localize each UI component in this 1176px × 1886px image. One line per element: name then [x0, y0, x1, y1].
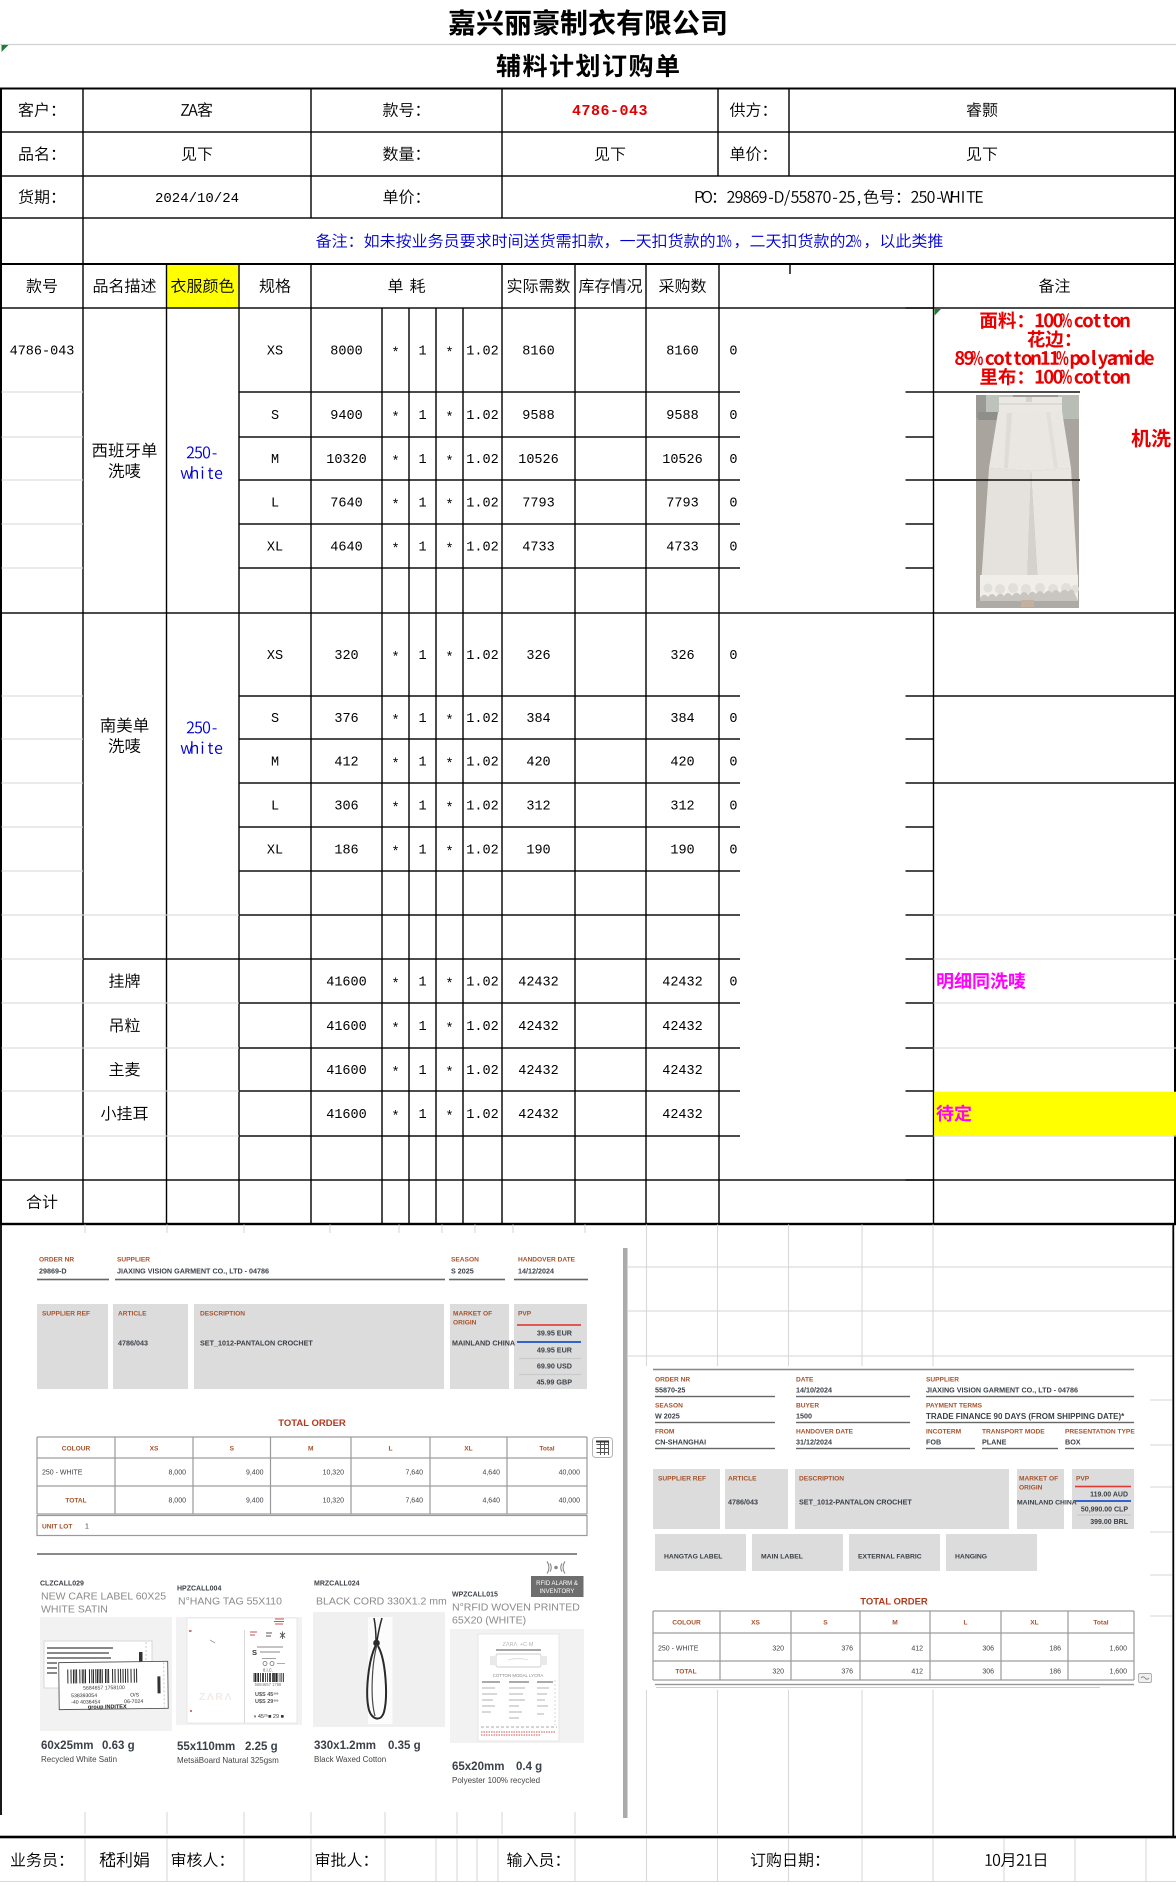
svg-text:186: 186 — [334, 844, 358, 859]
svg-text:BOX: BOX — [1065, 1438, 1081, 1447]
svg-text:*: * — [445, 1110, 453, 1125]
svg-text:8,000: 8,000 — [168, 1470, 186, 1477]
svg-text:1.02: 1.02 — [466, 712, 498, 727]
svg-text:186: 186 — [1049, 1669, 1061, 1676]
svg-text:N°RFID WOVEN PRINTED: N°RFID WOVEN PRINTED — [452, 1602, 580, 1614]
svg-text:HANDOVER DATE: HANDOVER DATE — [518, 1256, 576, 1263]
svg-text:S: S — [823, 1619, 828, 1626]
svg-text:ORDER NR: ORDER NR — [655, 1376, 690, 1383]
svg-text:55x110mm: 55x110mm — [177, 1741, 235, 1753]
svg-text:L: L — [271, 497, 279, 512]
svg-text:399.00 BRL: 399.00 BRL — [1090, 1519, 1128, 1526]
svg-text:ARTICLE: ARTICLE — [728, 1475, 757, 1482]
svg-text:186: 186 — [1049, 1646, 1061, 1653]
svg-text:XS: XS — [150, 1445, 159, 1452]
svg-text:55870-25: 55870-25 — [655, 1386, 685, 1395]
svg-text:*: * — [445, 978, 453, 993]
svg-text:N°HANG TAG 55X110: N°HANG TAG 55X110 — [178, 1596, 282, 1608]
svg-text:INVENTORY: INVENTORY — [540, 1589, 575, 1595]
svg-text:Polyester 100% recycled: Polyester 100% recycled — [452, 1776, 540, 1785]
svg-text:0: 0 — [729, 453, 737, 468]
svg-text:*: * — [445, 714, 453, 729]
svg-text:1: 1 — [85, 1524, 89, 1531]
svg-text:1: 1 — [418, 844, 426, 859]
svg-text:42432: 42432 — [518, 1108, 559, 1123]
svg-text:1.02: 1.02 — [466, 453, 498, 468]
svg-text:DESCRIPTION: DESCRIPTION — [799, 1475, 844, 1482]
svg-text:376: 376 — [334, 712, 358, 727]
svg-text:FROM: FROM — [655, 1428, 675, 1435]
svg-text:4786-043: 4786-043 — [572, 103, 648, 120]
svg-text:65x20mm: 65x20mm — [452, 1761, 504, 1773]
svg-text:BUYER: BUYER — [796, 1402, 819, 1409]
svg-text:*: * — [391, 499, 399, 514]
svg-text:42432: 42432 — [662, 1108, 703, 1123]
svg-text:M: M — [271, 453, 279, 468]
svg-text:69.90 USD: 69.90 USD — [537, 1362, 572, 1371]
svg-text:PVP: PVP — [1076, 1475, 1090, 1482]
svg-text:4733: 4733 — [522, 541, 554, 556]
svg-text:4786/043: 4786/043 — [728, 1498, 758, 1507]
svg-text:SET_1012-PANTALON CROCHET: SET_1012-PANTALON CROCHET — [799, 1498, 912, 1507]
svg-text:S: S — [252, 1648, 257, 1657]
svg-text:41600: 41600 — [326, 1020, 367, 1035]
svg-text:*: * — [391, 543, 399, 558]
svg-text:*: * — [445, 758, 453, 773]
svg-text:31/12/2024: 31/12/2024 — [796, 1438, 832, 1447]
svg-text:PVP: PVP — [518, 1310, 532, 1317]
svg-text:412: 412 — [911, 1646, 923, 1653]
svg-text:FOB: FOB — [926, 1438, 941, 1447]
svg-text:*: * — [391, 455, 399, 470]
svg-text:HANDOVER DATE: HANDOVER DATE — [796, 1428, 854, 1435]
svg-text:9588: 9588 — [666, 409, 698, 424]
svg-text:INCOTERM: INCOTERM — [926, 1428, 962, 1435]
svg-text:42432: 42432 — [662, 1064, 703, 1079]
svg-text:SET_1012-PANTALON CROCHET: SET_1012-PANTALON CROCHET — [200, 1339, 313, 1348]
svg-text:XS: XS — [267, 649, 283, 664]
svg-text:5684657 1758: 5684657 1758 — [255, 1682, 282, 1687]
svg-text:29869-D: 29869-D — [39, 1267, 67, 1276]
svg-text:0.35 g: 0.35 g — [388, 1740, 421, 1752]
svg-text:TOTAL ORDER: TOTAL ORDER — [278, 1418, 346, 1429]
svg-text:7640: 7640 — [330, 497, 362, 512]
svg-text:45.99 GBP: 45.99 GBP — [536, 1378, 572, 1387]
svg-text:*: * — [391, 714, 399, 729]
svg-text:4786/043: 4786/043 — [118, 1339, 148, 1348]
svg-text:420: 420 — [526, 756, 550, 771]
svg-text:320: 320 — [772, 1669, 784, 1676]
svg-text:*: * — [391, 651, 399, 666]
svg-text:U$S 45⁹⁹: U$S 45⁹⁹ — [255, 1692, 279, 1698]
svg-text:*: * — [391, 1110, 399, 1125]
svg-text:326: 326 — [670, 649, 694, 664]
svg-text:384: 384 — [526, 712, 550, 727]
svg-text:50,990.00 CLP: 50,990.00 CLP — [1081, 1507, 1128, 1514]
svg-text:1.02: 1.02 — [466, 409, 498, 424]
svg-text:60x25mm: 60x25mm — [41, 1740, 93, 1752]
svg-text:1: 1 — [418, 1108, 426, 1123]
svg-text:1: 1 — [418, 541, 426, 556]
svg-text:1: 1 — [418, 976, 426, 991]
svg-text:WHITE SATIN: WHITE SATIN — [41, 1604, 108, 1616]
svg-text:376: 376 — [841, 1646, 853, 1653]
svg-text:MARKET OF: MARKET OF — [1019, 1475, 1058, 1482]
svg-text:0: 0 — [729, 976, 737, 991]
svg-text:*: * — [445, 1022, 453, 1037]
svg-text:S: S — [230, 1445, 235, 1452]
svg-text:S 2025: S 2025 — [451, 1267, 474, 1276]
svg-text:*: * — [391, 347, 399, 362]
svg-text:M: M — [271, 756, 279, 771]
svg-text:8.I.C.: 8.I.C. — [263, 1668, 273, 1673]
svg-text:412: 412 — [911, 1669, 923, 1676]
svg-text:SUPPLIER REF: SUPPLIER REF — [658, 1475, 706, 1482]
svg-text:312: 312 — [670, 800, 694, 815]
svg-text:Total: Total — [1093, 1619, 1108, 1626]
svg-text:1.02: 1.02 — [466, 844, 498, 859]
svg-text:65X20 (WHITE): 65X20 (WHITE) — [452, 1615, 526, 1627]
svg-text:MAINLAND CHINA: MAINLAND CHINA — [452, 1339, 515, 1348]
svg-text:0: 0 — [729, 844, 737, 859]
svg-text:1: 1 — [418, 453, 426, 468]
svg-text:1: 1 — [418, 1064, 426, 1079]
svg-text:0: 0 — [729, 756, 737, 771]
svg-text:*: * — [391, 846, 399, 861]
svg-text:7793: 7793 — [522, 497, 554, 512]
svg-text:0: 0 — [729, 409, 737, 424]
svg-text:14/10/2024: 14/10/2024 — [796, 1386, 832, 1395]
svg-text:ZΛRΛ: ZΛRΛ — [199, 1691, 233, 1703]
svg-text:1.02: 1.02 — [466, 1108, 498, 1123]
svg-text:8160: 8160 — [522, 345, 554, 360]
svg-text:COTTON MODAL LYCRA: COTTON MODAL LYCRA — [493, 1673, 544, 1678]
svg-text:CLZCALL029: CLZCALL029 — [40, 1581, 84, 1588]
svg-text:1.02: 1.02 — [466, 649, 498, 664]
svg-text:0: 0 — [729, 541, 737, 556]
svg-text:06-7024: 06-7024 — [124, 1699, 143, 1705]
svg-text:Total: Total — [539, 1445, 554, 1452]
svg-text:ORIGIN: ORIGIN — [1019, 1484, 1043, 1491]
svg-text:2024/10/24: 2024/10/24 — [155, 191, 239, 207]
svg-text:TRADE FINANCE 90 DAYS (FROM SH: TRADE FINANCE 90 DAYS (FROM SHIPPING DAT… — [926, 1412, 1125, 1421]
svg-text:Black Waxed Cotton: Black Waxed Cotton — [314, 1755, 386, 1764]
svg-text:0: 0 — [729, 345, 737, 360]
svg-text:1.02: 1.02 — [466, 345, 498, 360]
svg-text:42432: 42432 — [518, 1064, 559, 1079]
svg-text:TOTAL: TOTAL — [65, 1497, 86, 1504]
svg-text:330x1.2mm: 330x1.2mm — [314, 1740, 376, 1752]
svg-text:1: 1 — [418, 409, 426, 424]
svg-text:39.95 EUR: 39.95 EUR — [537, 1329, 573, 1338]
svg-text:1.02: 1.02 — [466, 756, 498, 771]
svg-text:ZΛRΛ +C·M: ZΛRΛ +C·M — [502, 1642, 533, 1648]
svg-text:42432: 42432 — [662, 1020, 703, 1035]
svg-text:9400: 9400 — [330, 409, 362, 424]
svg-text:190: 190 — [526, 844, 550, 859]
svg-text:10320: 10320 — [326, 453, 367, 468]
svg-text:1.02: 1.02 — [466, 497, 498, 512]
svg-text:L: L — [271, 800, 279, 815]
svg-text:XL: XL — [464, 1445, 472, 1452]
svg-text:S: S — [271, 409, 279, 424]
svg-text:41600: 41600 — [326, 976, 367, 991]
svg-text:41600: 41600 — [326, 1064, 367, 1079]
svg-text:4640: 4640 — [330, 541, 362, 556]
svg-text:384: 384 — [670, 712, 694, 727]
svg-text:HPZCALL004: HPZCALL004 — [177, 1586, 221, 1593]
svg-text:S: S — [271, 712, 279, 727]
svg-text:0: 0 — [729, 649, 737, 664]
svg-text:10,320: 10,320 — [323, 1470, 345, 1477]
svg-text:*: * — [391, 411, 399, 426]
svg-text:119.00 AUD: 119.00 AUD — [1090, 1492, 1128, 1499]
svg-text:*: * — [391, 1066, 399, 1081]
svg-text:1: 1 — [418, 649, 426, 664]
svg-text:MAIN LABEL: MAIN LABEL — [761, 1553, 803, 1560]
svg-text:group INDITEX: group INDITEX — [88, 1704, 127, 1710]
svg-text:*: * — [445, 543, 453, 558]
svg-text:*: * — [391, 1022, 399, 1037]
svg-text:DESCRIPTION: DESCRIPTION — [200, 1310, 245, 1317]
svg-text:CN-SHANGHAI: CN-SHANGHAI — [655, 1438, 706, 1447]
svg-text:4,640: 4,640 — [482, 1498, 500, 1505]
svg-text:*: * — [391, 802, 399, 817]
svg-text:EXTERNAL FABRIC: EXTERNAL FABRIC — [858, 1553, 922, 1560]
svg-text:4733: 4733 — [666, 541, 698, 556]
svg-text:538393054: 538393054 — [71, 1693, 97, 1699]
svg-text:XS: XS — [267, 345, 283, 360]
svg-text:42432: 42432 — [662, 976, 703, 991]
svg-text:5684657 1758100: 5684657 1758100 — [83, 1685, 125, 1692]
svg-text:XL: XL — [267, 844, 283, 859]
svg-text:8000: 8000 — [330, 345, 362, 360]
svg-text:1,600: 1,600 — [1109, 1669, 1127, 1676]
svg-text:MetsäBoard Natural 325gsm: MetsäBoard Natural 325gsm — [177, 1756, 279, 1765]
svg-text:1: 1 — [418, 712, 426, 727]
svg-text:376: 376 — [841, 1669, 853, 1676]
svg-text:1: 1 — [418, 800, 426, 815]
svg-text:0.63 g: 0.63 g — [102, 1740, 135, 1752]
svg-text:7,640: 7,640 — [405, 1470, 423, 1477]
svg-text:XL: XL — [267, 541, 283, 556]
svg-text:2.25 g: 2.25 g — [245, 1741, 278, 1753]
svg-text:*: * — [391, 758, 399, 773]
svg-text:0: 0 — [729, 497, 737, 512]
svg-text:306: 306 — [982, 1669, 994, 1676]
svg-text:RFID ALARM &: RFID ALARM & — [536, 1581, 578, 1587]
svg-text:40,000: 40,000 — [559, 1470, 581, 1477]
svg-text:*: * — [445, 651, 453, 666]
svg-text:1: 1 — [418, 345, 426, 360]
svg-text:TOTAL: TOTAL — [675, 1668, 696, 1675]
svg-text:14/12/2024: 14/12/2024 — [518, 1267, 554, 1276]
svg-text:PLANE: PLANE — [982, 1438, 1007, 1447]
svg-text:0: 0 — [729, 800, 737, 815]
svg-text:SUPPLIER REF: SUPPLIER REF — [42, 1310, 90, 1317]
svg-text:L: L — [388, 1445, 392, 1452]
svg-text:420: 420 — [670, 756, 694, 771]
svg-text:1: 1 — [418, 497, 426, 512]
svg-text:9588: 9588 — [522, 409, 554, 424]
svg-text:PRESENTATION TYPE: PRESENTATION TYPE — [1065, 1428, 1135, 1435]
svg-text:ORIGIN: ORIGIN — [453, 1319, 477, 1326]
svg-text:1.02: 1.02 — [466, 541, 498, 556]
svg-text:*: * — [445, 347, 453, 362]
svg-text:*: * — [445, 1066, 453, 1081]
svg-text:BLACK CORD 330X1.2 mm: BLACK CORD 330X1.2 mm — [316, 1596, 447, 1608]
svg-text:326: 326 — [526, 649, 550, 664]
svg-text:*: * — [445, 802, 453, 817]
svg-text:O/S: O/S — [130, 1692, 140, 1698]
svg-text:10526: 10526 — [662, 453, 703, 468]
svg-text:306: 306 — [982, 1646, 994, 1653]
svg-text:412: 412 — [334, 756, 358, 771]
svg-text:W 2025: W 2025 — [655, 1412, 680, 1421]
svg-text:M: M — [892, 1619, 898, 1626]
svg-text:NEW CARE LABEL 60X25: NEW CARE LABEL 60X25 — [41, 1591, 166, 1603]
svg-text:U$S 29⁹⁹: U$S 29⁹⁹ — [255, 1699, 279, 1705]
svg-text:1.02: 1.02 — [466, 976, 498, 991]
svg-text:9,400: 9,400 — [246, 1470, 264, 1477]
svg-text:1.02: 1.02 — [466, 1064, 498, 1079]
svg-text:L: L — [963, 1619, 967, 1626]
svg-text:9,400: 9,400 — [246, 1498, 264, 1505]
svg-text:HANGTAG LABEL: HANGTAG LABEL — [664, 1553, 722, 1560]
svg-text:COLOUR: COLOUR — [62, 1445, 91, 1452]
svg-text:DATE: DATE — [796, 1376, 814, 1383]
svg-text:COLOUR: COLOUR — [672, 1619, 701, 1626]
svg-text:Recycled White Satin: Recycled White Satin — [41, 1755, 117, 1764]
svg-text:SEASON: SEASON — [451, 1256, 479, 1263]
svg-text:*: * — [445, 499, 453, 514]
svg-text:SUPPLIER: SUPPLIER — [117, 1256, 150, 1263]
svg-text:HANGING: HANGING — [955, 1553, 987, 1560]
svg-text:320: 320 — [334, 649, 358, 664]
svg-text:8,000: 8,000 — [168, 1498, 186, 1505]
svg-text:UNIT LOT: UNIT LOT — [42, 1523, 72, 1530]
svg-text:49.95 EUR: 49.95 EUR — [537, 1346, 573, 1355]
svg-text:TOTAL ORDER: TOTAL ORDER — [860, 1596, 928, 1607]
svg-text:0: 0 — [729, 712, 737, 727]
svg-text:4786-043: 4786-043 — [10, 345, 75, 360]
svg-text:4,640: 4,640 — [482, 1470, 500, 1477]
svg-text:MRZCALL024: MRZCALL024 — [314, 1581, 360, 1588]
svg-text:*: * — [445, 455, 453, 470]
svg-text:JIAXING VISION GARMENT CO., LT: JIAXING VISION GARMENT CO., LTD - 04786 — [117, 1267, 269, 1276]
svg-text:*: * — [445, 411, 453, 426]
svg-text:1,600: 1,600 — [1109, 1646, 1127, 1653]
svg-text:MARKET OF: MARKET OF — [453, 1310, 492, 1317]
svg-text:SEASON: SEASON — [655, 1402, 683, 1409]
svg-text:312: 312 — [526, 800, 550, 815]
svg-text:1500: 1500 — [796, 1412, 812, 1421]
svg-text:7793: 7793 — [666, 497, 698, 512]
svg-text:SUPPLIER: SUPPLIER — [926, 1376, 959, 1383]
svg-text:◑ 45²⁵■ 29 ■: ◑ 45²⁵■ 29 ■ — [253, 1713, 284, 1720]
svg-text:1.02: 1.02 — [466, 800, 498, 815]
svg-text:PAYMENT TERMS: PAYMENT TERMS — [926, 1402, 983, 1409]
svg-text:*: * — [391, 978, 399, 993]
svg-text:WPZCALL015: WPZCALL015 — [452, 1592, 498, 1599]
svg-text:250 - WHITE: 250 - WHITE — [658, 1646, 699, 1653]
svg-text:190: 190 — [670, 844, 694, 859]
svg-text:42432: 42432 — [518, 1020, 559, 1035]
svg-text:JIAXING VISION GARMENT CO., LT: JIAXING VISION GARMENT CO., LTD - 04786 — [926, 1386, 1078, 1395]
svg-text:10526: 10526 — [518, 453, 559, 468]
svg-text:320: 320 — [772, 1646, 784, 1653]
svg-text:42432: 42432 — [518, 976, 559, 991]
svg-text:0.4 g: 0.4 g — [516, 1761, 542, 1773]
svg-text:8160: 8160 — [666, 345, 698, 360]
svg-text:40,000: 40,000 — [559, 1498, 581, 1505]
svg-text:306: 306 — [334, 800, 358, 815]
svg-text:250 - WHITE: 250 - WHITE — [42, 1470, 83, 1477]
svg-text:*: * — [445, 846, 453, 861]
svg-text:TRANSPORT MODE: TRANSPORT MODE — [982, 1428, 1045, 1435]
svg-text:MAINLAND CHINA: MAINLAND CHINA — [1017, 1499, 1077, 1506]
svg-text:10,320: 10,320 — [323, 1498, 345, 1505]
svg-text:XL: XL — [1030, 1619, 1038, 1626]
svg-text:ORDER NR: ORDER NR — [39, 1256, 74, 1263]
svg-text:XS: XS — [751, 1619, 760, 1626]
svg-text:1: 1 — [418, 756, 426, 771]
svg-text:1: 1 — [418, 1020, 426, 1035]
svg-text:M: M — [308, 1445, 314, 1452]
svg-text:7,640: 7,640 — [405, 1498, 423, 1505]
svg-text:1.02: 1.02 — [466, 1020, 498, 1035]
svg-text:41600: 41600 — [326, 1108, 367, 1123]
svg-text:ARTICLE: ARTICLE — [118, 1310, 147, 1317]
